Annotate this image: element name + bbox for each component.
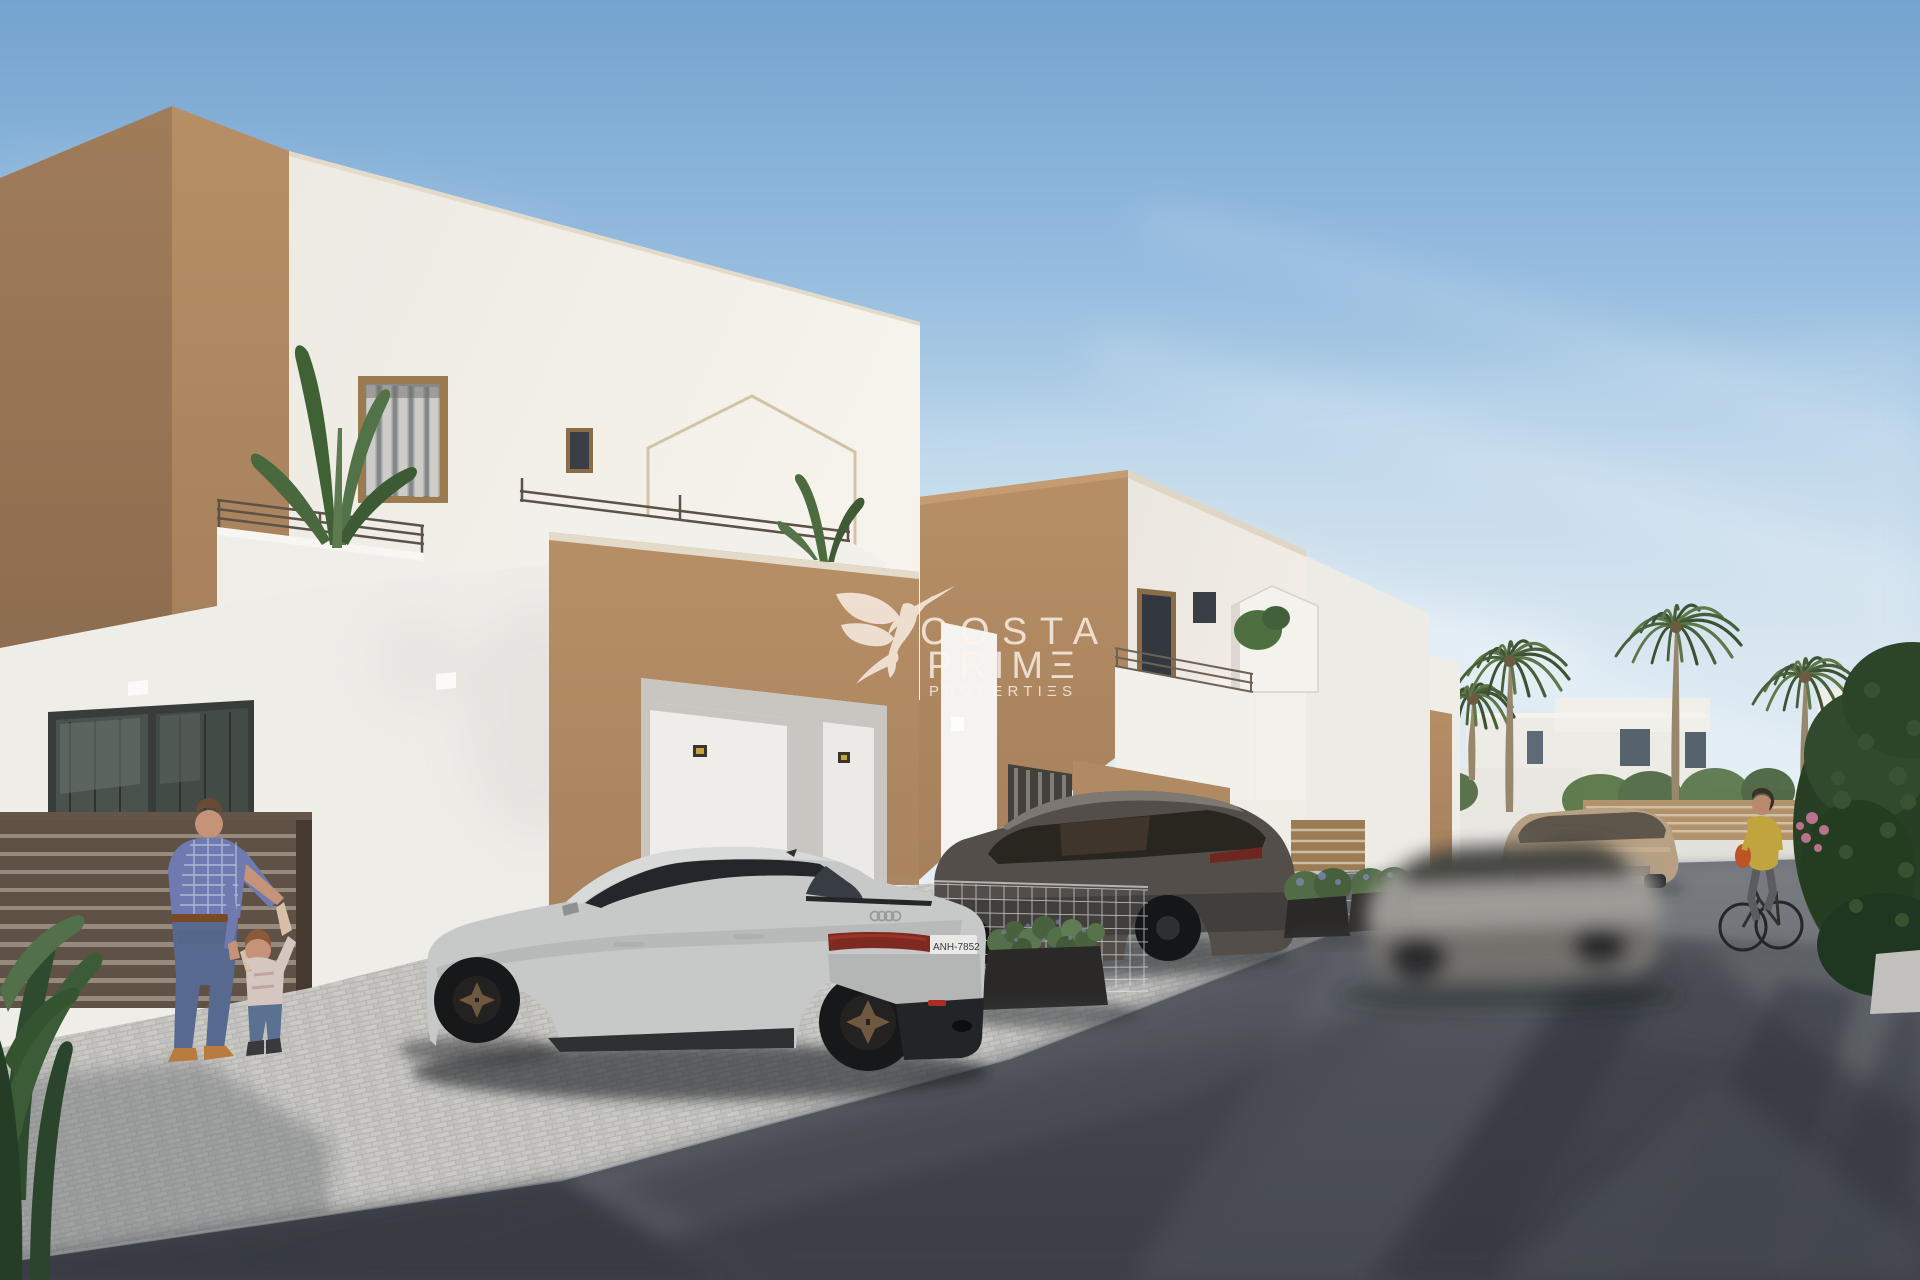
svg-text:PROPERTIΞS: PROPERTIΞS [929, 683, 1077, 700]
svg-text:ANH-7852: ANH-7852 [933, 942, 980, 953]
svg-text:PRIMΞ: PRIMΞ [927, 645, 1082, 687]
